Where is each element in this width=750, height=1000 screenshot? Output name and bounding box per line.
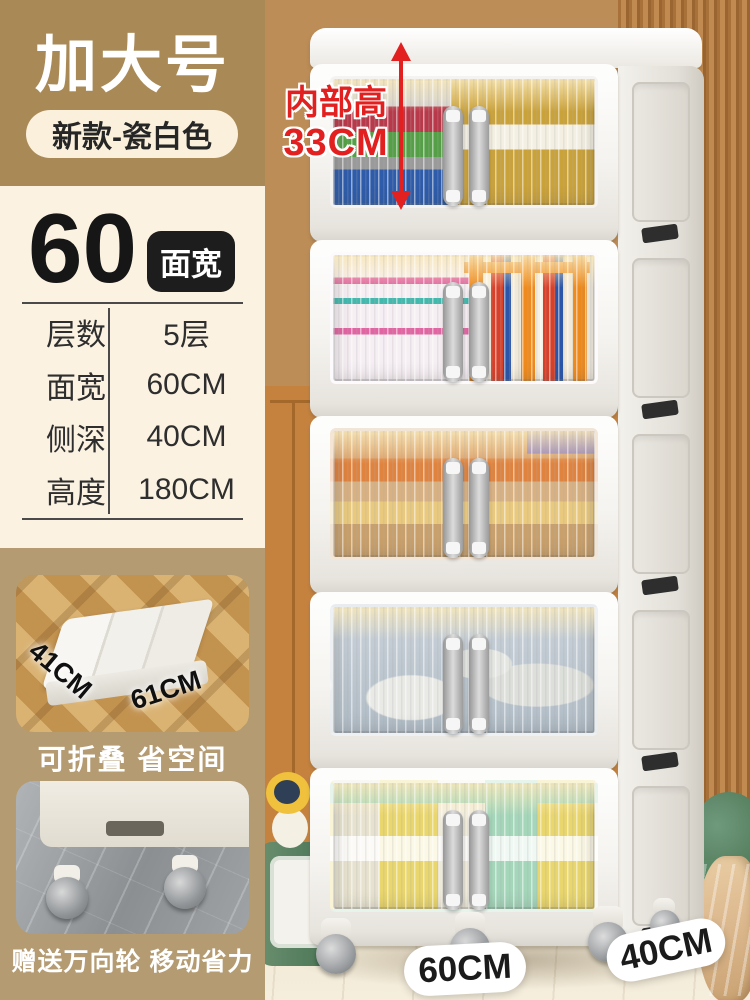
handle-bar xyxy=(443,810,463,910)
folded-box-photo: 41CM 61CM xyxy=(16,575,249,732)
duck-toy-face xyxy=(274,780,300,804)
side-recess xyxy=(632,258,690,398)
spec-value: 60CM xyxy=(130,359,243,412)
wheel-photo xyxy=(16,781,249,934)
handle-bar xyxy=(469,810,489,910)
spec-width-number: 60 xyxy=(28,199,137,297)
header-panel: 加大号 新款-瓷白色 xyxy=(0,0,265,186)
handle-bar xyxy=(443,282,463,382)
cabinet-lid xyxy=(310,28,702,68)
table-divider-vertical xyxy=(108,308,110,514)
measure-arrow-line xyxy=(399,60,403,192)
wheel-photo-caption: 赠送万向轮 移动省力 xyxy=(0,942,265,978)
spec-unit-badge: 面宽 xyxy=(147,231,235,292)
spec-table: 层数 5层 面宽 60CM 侧深 40CM 高度 180CM xyxy=(22,306,243,516)
spec-value: 40CM xyxy=(130,411,243,464)
inner-height-label: 内部高 xyxy=(272,84,400,122)
divider xyxy=(22,302,243,304)
caster-roll xyxy=(46,877,88,919)
spec-value: 5层 xyxy=(130,306,243,359)
product-title: 加大号 xyxy=(0,14,265,104)
spec-label: 面宽 xyxy=(22,359,130,412)
side-handle-notch xyxy=(641,400,679,420)
divider xyxy=(22,518,243,520)
spec-value: 180CM xyxy=(130,464,243,517)
storage-tier-2 xyxy=(310,240,618,418)
width-floor-label: 60CM xyxy=(403,941,527,997)
side-handle-notch xyxy=(641,752,679,772)
spec-panel: 60 面宽 层数 5层 面宽 60CM 侧深 40CM 高度 180CM xyxy=(0,186,265,548)
handle-bar xyxy=(443,634,463,734)
bottom-panel: 41CM 61CM 可折叠 省空间 赠送万向轮 移动省力 xyxy=(0,548,265,1000)
caster-wheel xyxy=(314,918,358,976)
handle-bar xyxy=(469,282,489,382)
cabinet-slot xyxy=(106,821,164,836)
inner-height-value: 33CM xyxy=(272,122,400,165)
inner-height-annotation: 内部高 33CM xyxy=(272,84,400,165)
cabinet-side-panel xyxy=(618,66,704,944)
product-listing-image: 内部高 33CM 60CM 40CM 加大号 新款-瓷白色 60 面宽 层数 5… xyxy=(0,0,750,1000)
handle-bar xyxy=(469,106,489,206)
side-recess xyxy=(632,434,690,574)
side-handle-notch xyxy=(641,224,679,244)
storage-tier-4 xyxy=(310,592,618,770)
variant-badge: 新款-瓷白色 xyxy=(26,110,238,158)
door-handles xyxy=(442,282,490,382)
door-handles xyxy=(442,810,490,910)
fold-photo-caption: 可折叠 省空间 xyxy=(0,738,265,778)
cabinet-bottom-edge xyxy=(40,781,249,847)
storage-tier-3 xyxy=(310,416,618,594)
spec-label: 高度 xyxy=(22,464,130,517)
handle-bar xyxy=(443,458,463,558)
side-recess xyxy=(632,82,690,222)
storage-cabinet xyxy=(308,28,704,968)
side-recess xyxy=(632,610,690,750)
spec-label: 侧深 xyxy=(22,411,130,464)
measure-arrow-up xyxy=(391,42,411,61)
side-handle-notch xyxy=(641,576,679,596)
spec-label: 层数 xyxy=(22,306,130,359)
door-handles xyxy=(442,634,490,734)
door-handles xyxy=(442,458,490,558)
measure-arrow-down xyxy=(391,191,411,210)
door-handles xyxy=(442,106,490,206)
spec-headline: 60 面宽 xyxy=(28,196,248,300)
duck-toy-body xyxy=(272,808,308,848)
handle-bar xyxy=(469,458,489,558)
caster-roll xyxy=(316,934,356,974)
handle-bar xyxy=(469,634,489,734)
caster-roll xyxy=(164,867,206,909)
handle-bar xyxy=(443,106,463,206)
